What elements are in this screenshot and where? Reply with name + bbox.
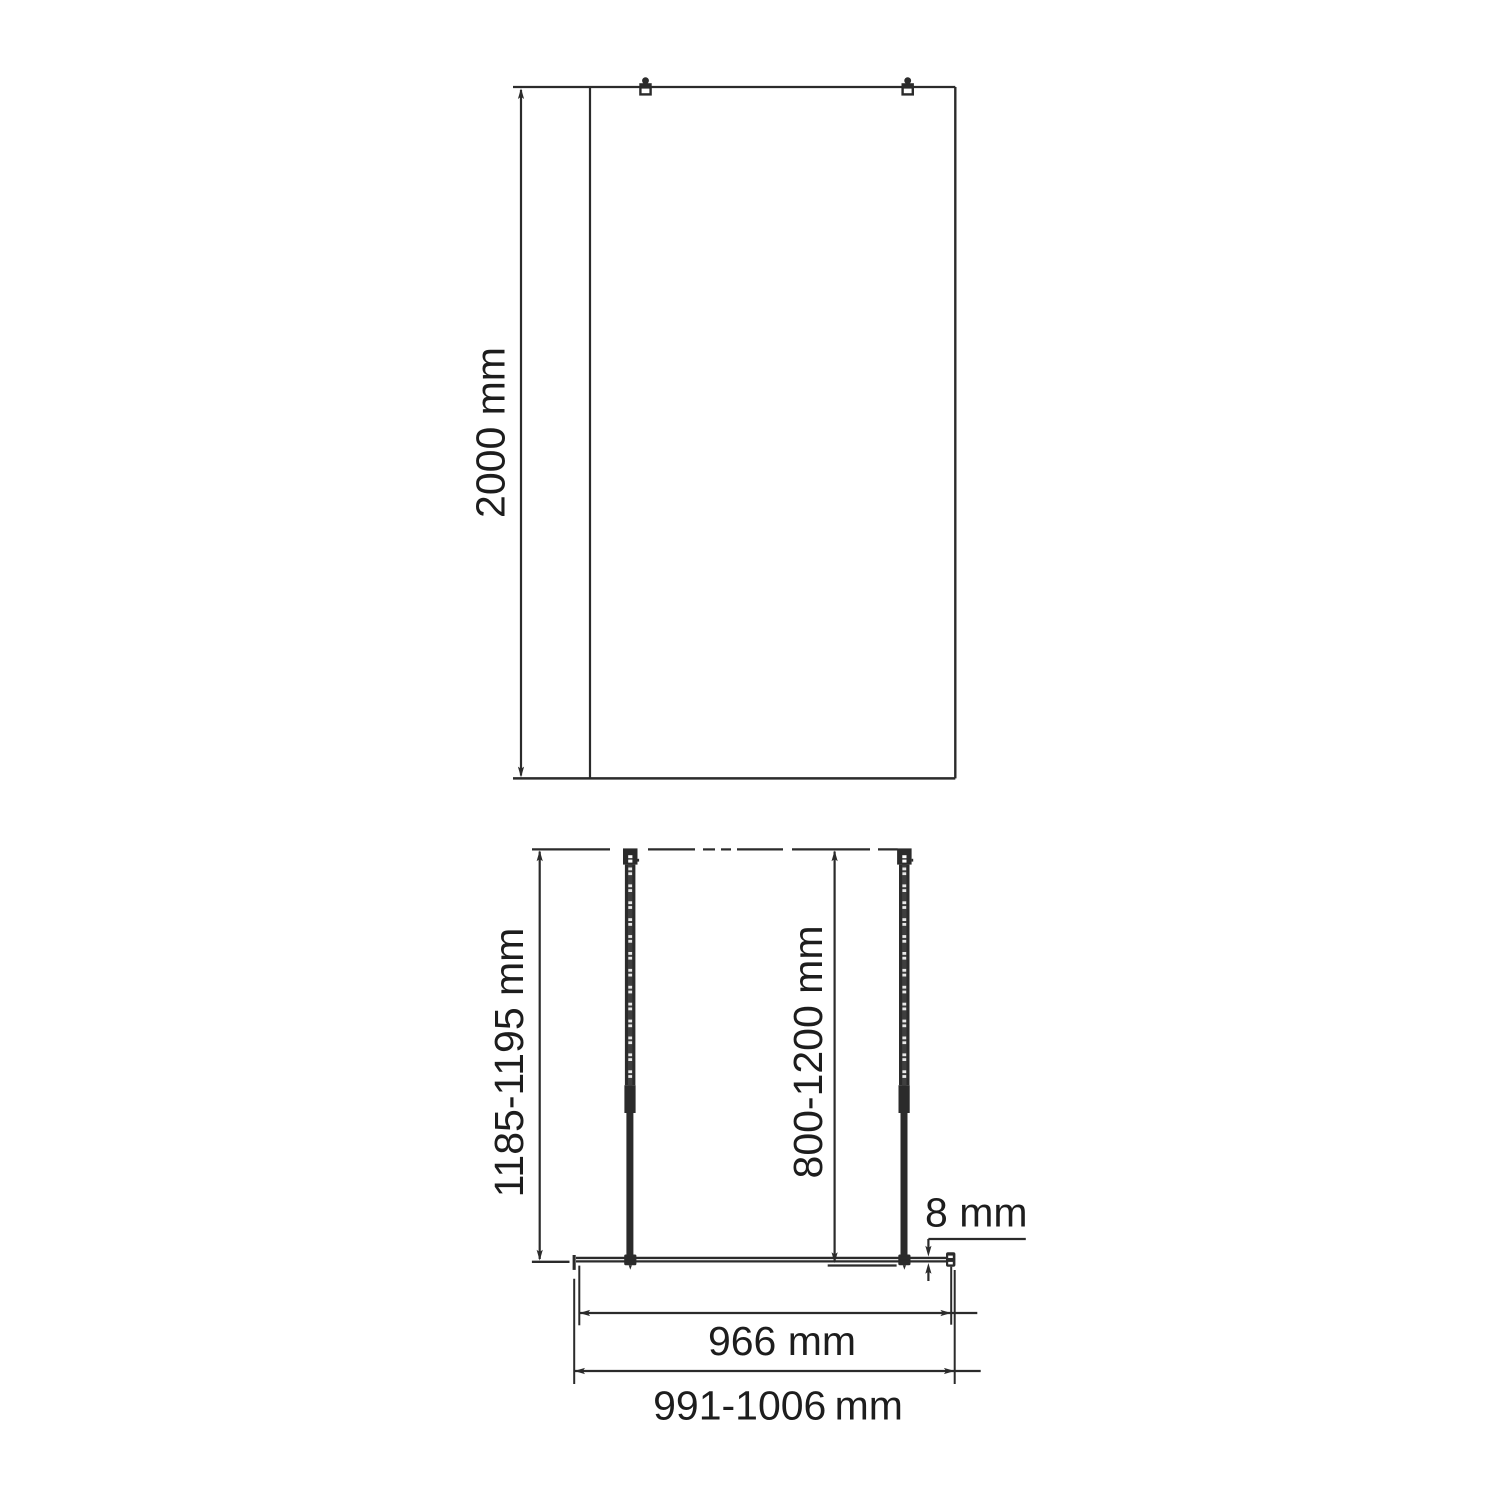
svg-text:800-1200 mm: 800-1200 mm	[785, 926, 831, 1179]
svg-text:991-1006 mm: 991-1006 mm	[653, 1383, 903, 1429]
svg-text:8 mm: 8 mm	[925, 1190, 1028, 1236]
svg-text:1185-1195 mm: 1185-1195 mm	[486, 928, 532, 1198]
svg-text:966 mm: 966 mm	[708, 1318, 856, 1364]
svg-text:2000 mm: 2000 mm	[468, 347, 514, 518]
